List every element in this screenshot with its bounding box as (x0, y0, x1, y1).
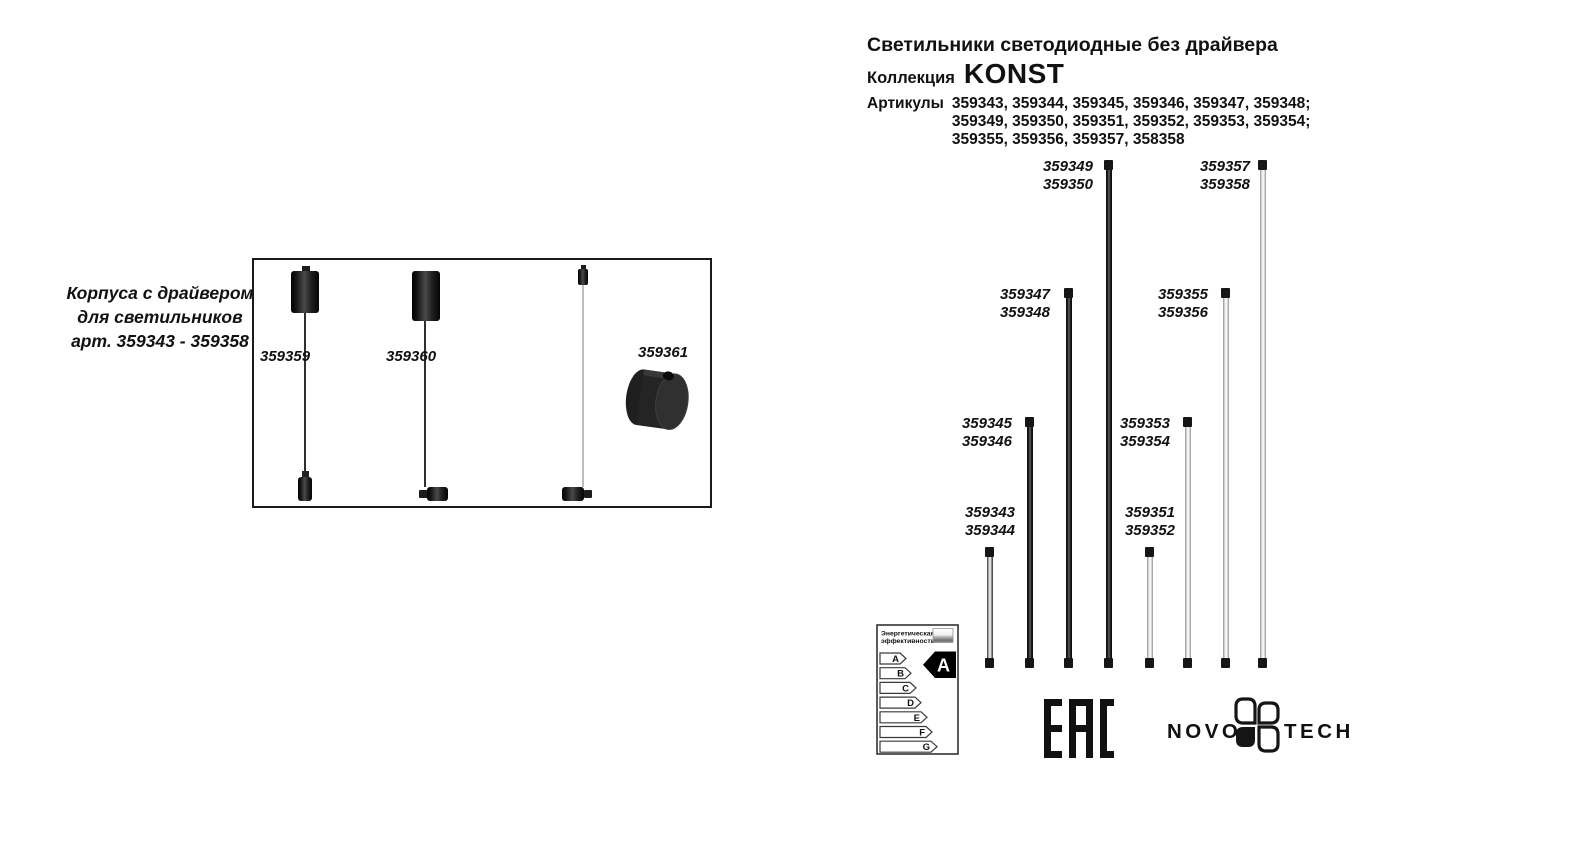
energy-title-line2: эффективность (881, 638, 935, 645)
tube-cap-top (1025, 417, 1034, 427)
pendant-driver-canopy (291, 271, 319, 313)
pendant-driver-canopy (412, 271, 440, 321)
led-tube (985, 547, 994, 668)
energy-title-line1: Энергетическая (881, 631, 934, 638)
suspension-cord (582, 285, 584, 487)
tube-body (1260, 170, 1266, 658)
tube-cap-bottom (1104, 658, 1113, 668)
tube-label: 359343359344 (945, 504, 1035, 539)
tube-body (1223, 298, 1229, 658)
tube-cap-bottom (985, 658, 994, 668)
collection-label: Коллекция (867, 69, 955, 88)
tube-cap-bottom (1221, 658, 1230, 668)
tube-body (1106, 170, 1112, 658)
articles-block: Артикулы 359343, 359344, 359345, 359346,… (867, 95, 1310, 149)
fixture-label: 359361 (638, 344, 688, 361)
tube-body (1185, 427, 1191, 658)
tube-label: 359351359352 (1105, 504, 1195, 539)
novotech-logo-left: NOVO (1167, 720, 1241, 744)
tube-body (987, 557, 993, 658)
led-tube (1145, 547, 1154, 668)
class-letter: E (914, 713, 920, 724)
left-caption-line: Корпуса с драйвером (62, 281, 258, 305)
tube-cap-bottom (1183, 658, 1192, 668)
class-letter: C (902, 683, 909, 694)
left-caption: Корпуса с драйвером для светильников арт… (62, 281, 258, 353)
pendant-connector (298, 477, 312, 501)
tube-cap-bottom (1145, 658, 1154, 668)
clover-petal-solid (1236, 727, 1255, 747)
tube-cap-bottom (1064, 658, 1073, 668)
class-letter: D (907, 698, 914, 709)
tube-label: 359357359358 (1160, 158, 1250, 193)
tube-label: 359345359346 (922, 415, 1012, 450)
tube-body (1066, 298, 1072, 658)
tube-cap-top (985, 547, 994, 557)
tube-cap-top (1183, 417, 1192, 427)
horizontal-connector (427, 487, 448, 501)
energy-efficiency-label: Энергетическая эффективность A B C D E (876, 624, 959, 755)
articles-line: 359349, 359350, 359351, 359352, 359353, … (952, 113, 1311, 131)
suspension-cord (304, 313, 306, 471)
collection-name: KONST (964, 58, 1065, 90)
connector-nub (584, 490, 592, 498)
articles-label: Артикулы (867, 95, 944, 149)
led-tube (1064, 288, 1073, 668)
led-tube (1025, 417, 1034, 668)
tube-body (1027, 427, 1033, 658)
led-tube (1258, 160, 1267, 668)
tube-cap-bottom (1025, 658, 1034, 668)
articles-lines: 359343, 359344, 359345, 359346, 359347, … (952, 95, 1311, 149)
class-arrow-d (880, 697, 921, 708)
tube-cap-top (1258, 160, 1267, 170)
led-tube (1183, 417, 1192, 668)
tube-cap-bottom (1258, 658, 1267, 668)
surface-drum-fixture (620, 360, 700, 444)
horizontal-connector (562, 487, 584, 501)
tube-cap-top (1221, 288, 1230, 298)
led-tube (1104, 160, 1113, 668)
novotech-logo-right: TECH (1284, 720, 1354, 744)
articles-line: 359355, 359356, 359357, 358358 (952, 131, 1311, 149)
tube-body (1147, 557, 1153, 658)
clover-icon (1234, 693, 1280, 755)
tube-cap-top (1104, 160, 1113, 170)
tube-cap-top (1145, 547, 1154, 557)
tube-label: 359347359348 (960, 286, 1050, 321)
left-caption-line: арт. 359343 - 359358 (62, 329, 258, 353)
class-arrow-c (880, 682, 916, 693)
articles-line: 359343, 359344, 359345, 359346, 359347, … (952, 95, 1311, 113)
collection-row: Коллекция KONST (867, 58, 1064, 90)
fixture-label: 359360 (386, 348, 436, 365)
suspension-cord (424, 321, 426, 487)
tube-cap-top (1064, 288, 1073, 298)
tube-label: 359349359350 (1003, 158, 1093, 193)
tube-label: 359355359356 (1118, 286, 1208, 321)
class-letter: B (897, 669, 904, 680)
rating-letter: A (937, 656, 950, 676)
eac-glyphs (1044, 699, 1114, 758)
gradient-bar (933, 629, 953, 643)
left-caption-line: для светильников (62, 305, 258, 329)
fixture-label: 359359 (260, 348, 310, 365)
class-letter: F (919, 728, 925, 739)
class-letter: G (923, 742, 930, 753)
led-tube (1221, 288, 1230, 668)
class-arrow-b (880, 668, 911, 679)
eac-logo (1044, 699, 1114, 758)
tube-label: 359353359354 (1080, 415, 1170, 450)
cord-top-cap (578, 269, 588, 285)
catalog-page: Корпуса с драйвером для светильников арт… (0, 0, 1587, 858)
class-letter: A (892, 654, 899, 665)
page-title: Светильники светодиодные без драйвера (867, 34, 1278, 57)
